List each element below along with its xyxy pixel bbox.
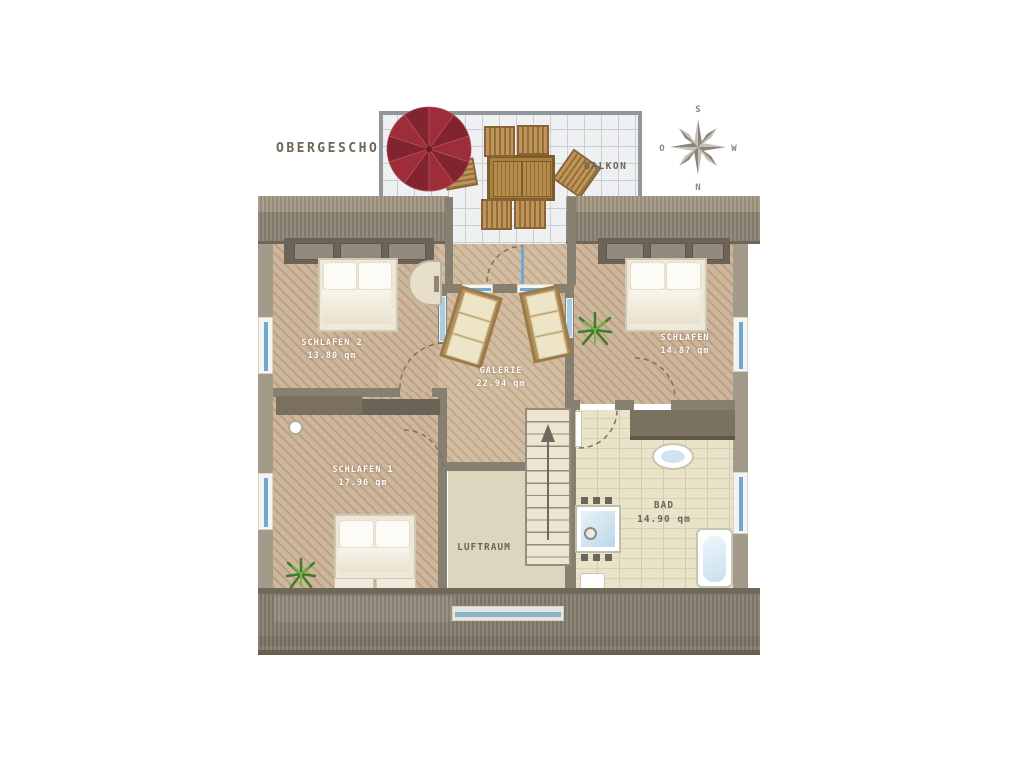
patio-table: [487, 155, 555, 201]
balcony-wall: [379, 111, 383, 197]
room-label-balkon: BALKON: [584, 161, 627, 172]
door-arc: [579, 410, 617, 448]
floor-plan: OBERGESCHOSS S N O W: [0, 0, 1020, 765]
room-area: 13.80 qm: [301, 350, 362, 363]
door-arc: [404, 430, 443, 469]
umbrella-icon: [384, 104, 474, 194]
room-label-galerie: GALERIE 22.94 qm: [477, 365, 526, 391]
compass-label-n: N: [695, 183, 700, 193]
roof-band-bottom: [258, 588, 760, 655]
window: [452, 606, 564, 621]
balcony-wall: [638, 111, 642, 197]
room-area: 14.90 qm: [637, 513, 691, 527]
roof-texture: [274, 596, 454, 622]
room-label-schlafen3: SCHLAFEN 14.87 qm: [661, 332, 710, 358]
table-slats: [493, 161, 522, 197]
room-label-schlafen2: SCHLAFEN 2 13.80 qm: [301, 337, 362, 363]
compass-label-w: W: [731, 144, 737, 154]
room-name: LUFTRAUM: [457, 541, 511, 555]
room-area: 17.96 qm: [332, 477, 393, 490]
room-area: 14.87 qm: [661, 345, 710, 358]
patio-chair: [517, 125, 549, 155]
room-name: SCHLAFEN 1: [332, 464, 393, 477]
room-name: GALERIE: [477, 365, 526, 378]
compass-label-o: O: [659, 144, 665, 154]
compass-rose: S N O W: [655, 101, 741, 193]
roof-texture: [258, 636, 760, 646]
door-arc: [635, 358, 675, 398]
room-name: SCHLAFEN: [661, 332, 710, 345]
room-area: 22.94 qm: [477, 378, 526, 391]
compass-star: [670, 119, 726, 175]
door-swing-overlay: [258, 196, 760, 588]
room-name: SCHLAFEN 2: [301, 337, 362, 350]
room-name: BAD: [637, 499, 691, 513]
roof-edge: [258, 588, 760, 594]
patio-chair: [484, 126, 515, 157]
room-label-bad: BAD 14.90 qm: [637, 499, 691, 528]
compass-label-s: S: [695, 105, 700, 115]
room-label-schlafen1: SCHLAFEN 1 17.96 qm: [332, 464, 393, 490]
door-arc: [487, 246, 523, 282]
room-label-luftraum: LUFTRAUM: [457, 541, 511, 555]
door-arc: [400, 343, 445, 388]
table-slats: [522, 161, 551, 197]
roof-edge: [258, 650, 760, 655]
